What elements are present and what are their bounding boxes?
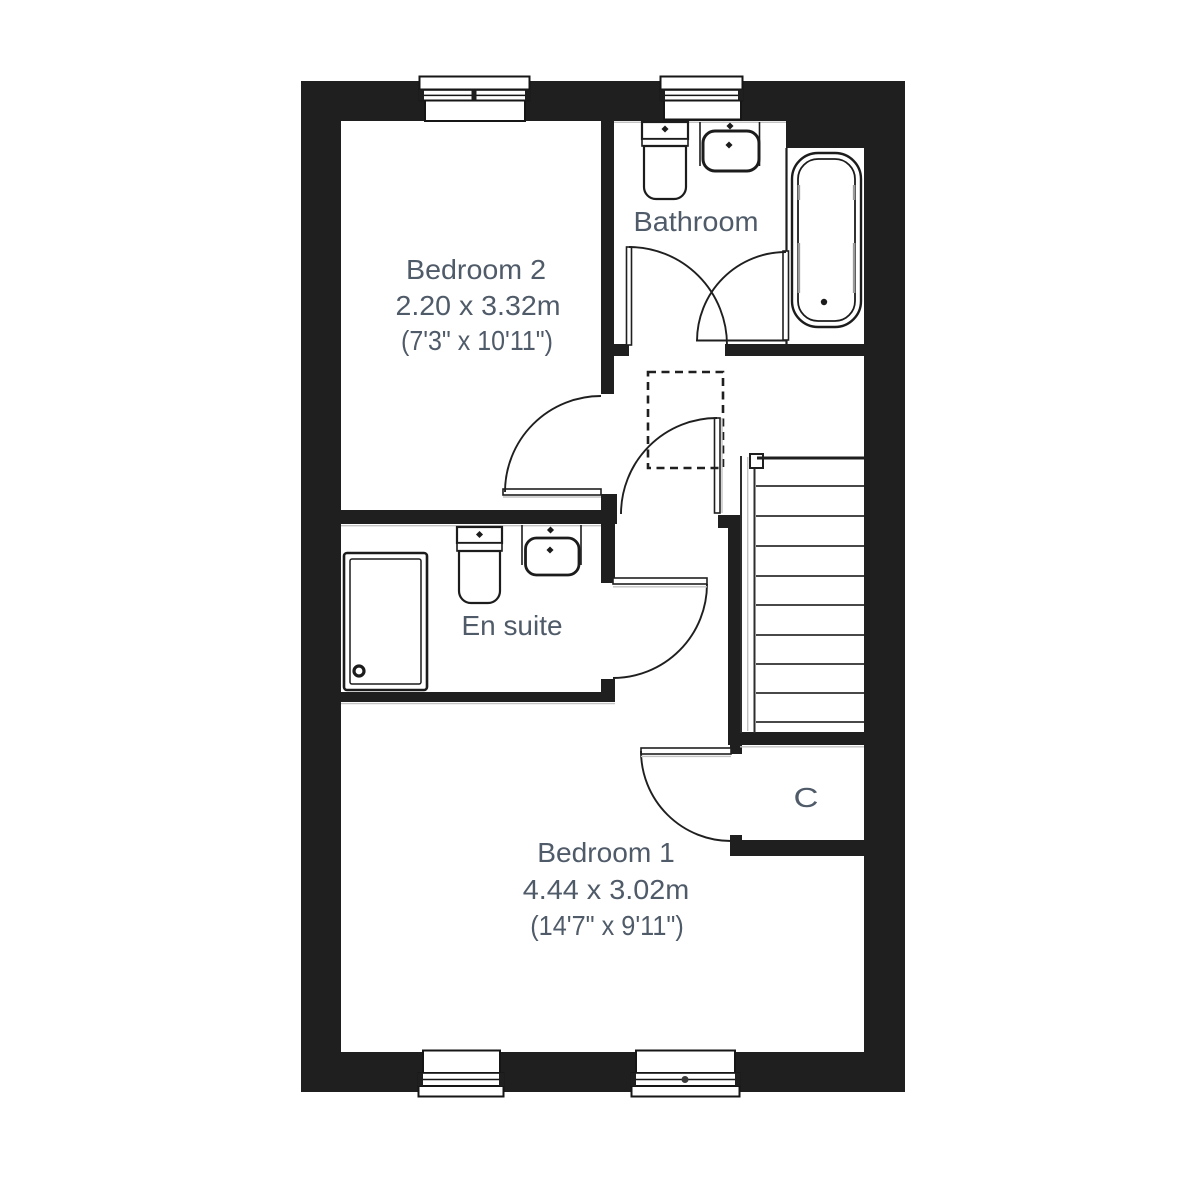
svg-text:En suite: En suite: [462, 610, 563, 641]
svg-text:4.44 x 3.02m: 4.44 x 3.02m: [523, 874, 690, 905]
svg-text:Bedroom 1: Bedroom 1: [537, 837, 675, 868]
svg-text:2.20 x 3.32m: 2.20 x 3.32m: [396, 290, 561, 321]
svg-text:C: C: [794, 782, 819, 813]
svg-text:(7'3" x 10'11"): (7'3" x 10'11"): [401, 325, 553, 356]
svg-text:Bathroom: Bathroom: [634, 206, 759, 237]
svg-text:(14'7" x 9'11"): (14'7" x 9'11"): [530, 910, 684, 941]
svg-text:Bedroom 2: Bedroom 2: [406, 254, 546, 285]
